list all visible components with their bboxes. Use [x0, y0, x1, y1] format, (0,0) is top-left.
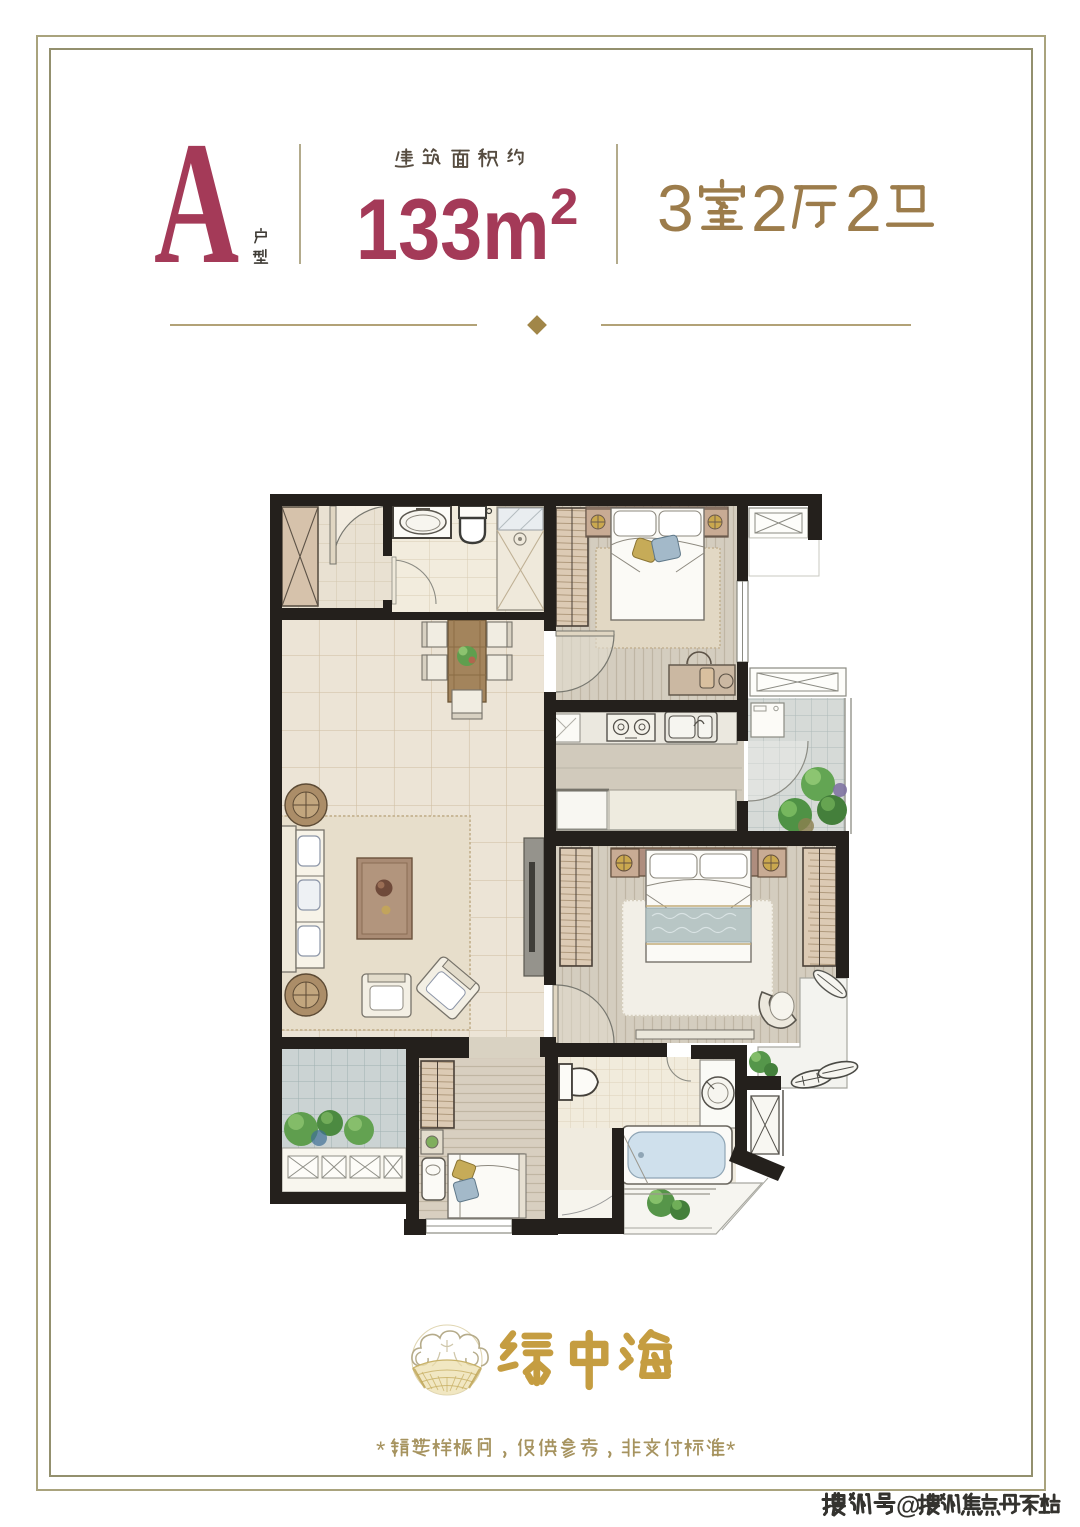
svg-text:*: *: [726, 1437, 735, 1464]
svg-text:2: 2: [751, 171, 788, 245]
svg-text:@: @: [896, 1492, 920, 1520]
svg-text:A: A: [154, 107, 239, 301]
svg-text:2: 2: [550, 178, 578, 235]
svg-text:3: 3: [657, 171, 694, 245]
svg-text:133m: 133m: [356, 183, 550, 279]
svg-text:2: 2: [845, 171, 882, 245]
svg-text:*: *: [376, 1437, 385, 1464]
